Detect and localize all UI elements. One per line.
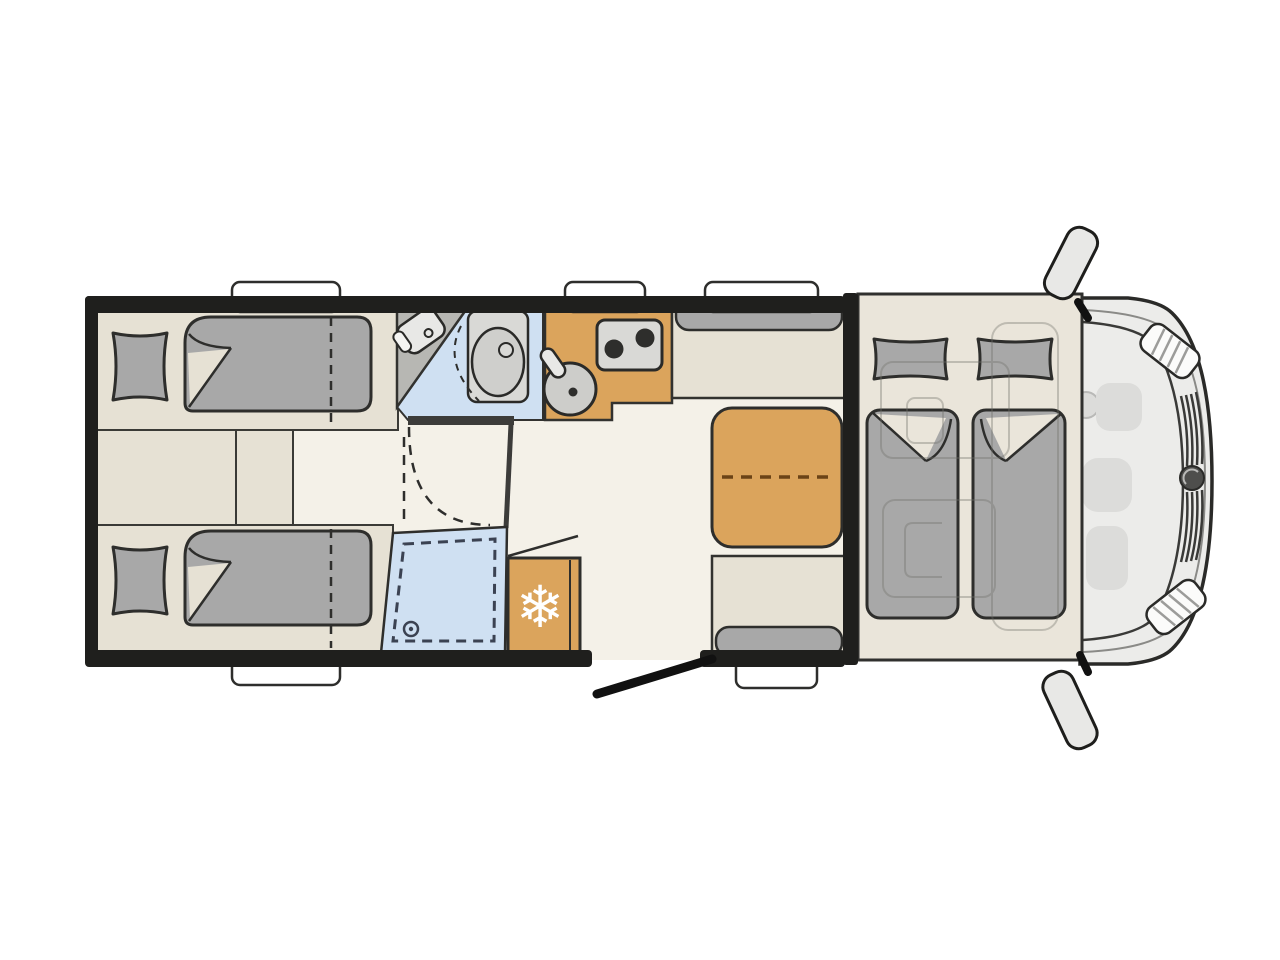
driver-cab: [1073, 298, 1212, 664]
overcab-bed-area: [858, 294, 1082, 660]
side-mirror-bottom: [1039, 655, 1102, 753]
snowflake-icon: ❄: [516, 573, 565, 641]
overcab-pillow-top: [874, 339, 947, 379]
stove-burner-left: [605, 340, 624, 359]
mirror-glass: [1039, 667, 1102, 753]
stove-burner-right: [636, 329, 655, 348]
entry-door-open: [597, 659, 712, 694]
wall-rear: [85, 296, 98, 664]
between-beds-step: [96, 430, 293, 525]
wall-bottom-left: [85, 650, 592, 667]
cab-partition-wall: [843, 293, 858, 665]
mirror-glass: [1040, 223, 1102, 303]
sink-drain: [569, 388, 578, 397]
cab-seat-driver: [1096, 383, 1142, 431]
pillow: [113, 547, 167, 614]
pillow: [113, 333, 167, 400]
motorhome-floorplan: ❄: [0, 0, 1280, 960]
wall-bottom-right: [700, 650, 845, 667]
toilet-flush: [499, 343, 513, 357]
overcab-pillow-bottom: [978, 339, 1052, 379]
toilet-bowl: [472, 328, 524, 396]
kitchen: [538, 300, 672, 420]
bathroom-wall-bottom: [408, 416, 514, 425]
cab-center-console: [1082, 458, 1132, 512]
wall-top: [85, 296, 845, 313]
overcab-duvet-bottom: [973, 410, 1065, 618]
shower-drain-dot: [409, 627, 413, 631]
shower: [381, 527, 507, 653]
cab-seat-passenger: [1086, 526, 1128, 590]
